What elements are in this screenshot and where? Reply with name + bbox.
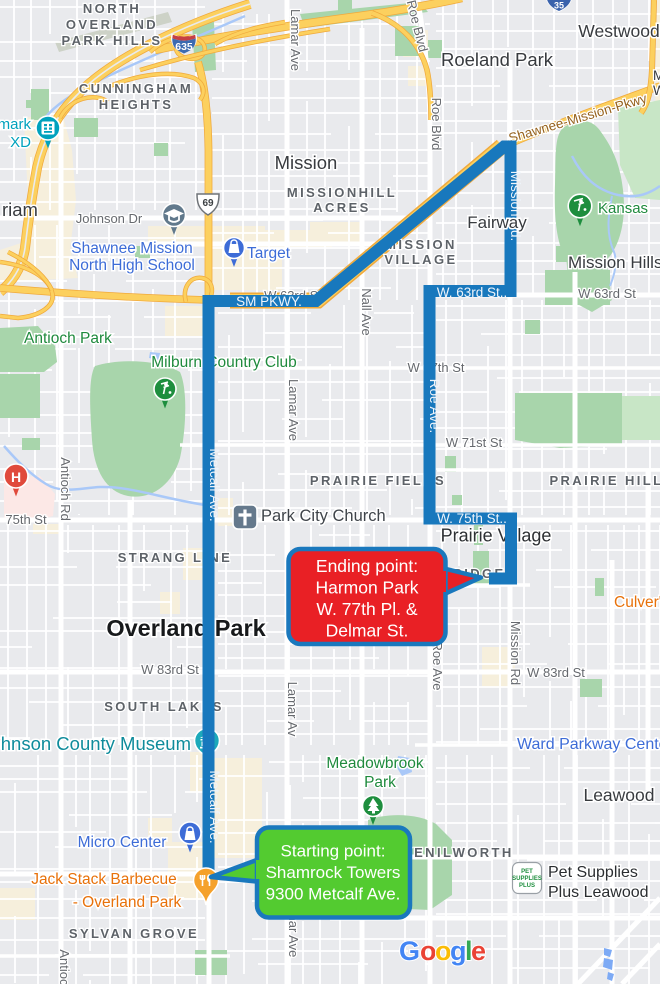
svg-text:Harmon Park: Harmon Park (315, 578, 418, 598)
svg-text:STRANG LINE: STRANG LINE (118, 550, 233, 565)
svg-text:Ending point:: Ending point: (316, 556, 418, 576)
svg-text:Shamrock Towers: Shamrock Towers (266, 863, 401, 882)
svg-text:NORTH: NORTH (83, 1, 141, 16)
svg-text:G: G (399, 936, 420, 966)
svg-text:635: 635 (175, 41, 193, 53)
svg-text:Fairway: Fairway (467, 213, 527, 232)
svg-text:Meadowbrook: Meadowbrook (326, 755, 424, 772)
svg-text:Overland Park: Overland Park (106, 615, 266, 641)
svg-text:9300 Metcalf Ave.: 9300 Metcalf Ave. (266, 885, 401, 904)
svg-text:Micro Center: Micro Center (78, 834, 167, 851)
svg-text:69: 69 (202, 198, 214, 209)
svg-text:75th St: 75th St (5, 512, 47, 527)
svg-text:PARK HILLS: PARK HILLS (61, 33, 162, 48)
svg-text:SUPPLIES: SUPPLIES (512, 876, 542, 882)
svg-text:MISSIONHILL: MISSIONHILL (287, 185, 397, 200)
svg-text:Lamar Ave: Lamar Ave (288, 9, 303, 71)
svg-text:PRAIRIE HILLS: PRAIRIE HILLS (549, 473, 660, 488)
svg-text:Plus Leawood: Plus Leawood (548, 884, 649, 901)
svg-text:Park: Park (364, 774, 396, 791)
svg-text:ACRES: ACRES (313, 200, 371, 215)
svg-text:SYLVAN GROVE: SYLVAN GROVE (69, 926, 199, 941)
svg-text:Mission Hills: Mission Hills (568, 253, 660, 272)
svg-text:W. 77th Pl. &: W. 77th Pl. & (316, 599, 417, 619)
svg-text:Shawnee Mission: Shawnee Mission (71, 240, 192, 257)
svg-text:H: H (11, 469, 21, 485)
svg-text:Culver's: Culver's (614, 594, 660, 611)
svg-text:North High School: North High School (69, 257, 195, 274)
svg-text:W 67th St: W 67th St (407, 360, 464, 375)
svg-text:Mission Rd: Mission Rd (508, 621, 523, 685)
svg-text:Roe Blvd: Roe Blvd (429, 98, 444, 151)
svg-text:SM PKWY.: SM PKWY. (236, 294, 302, 309)
svg-text:XD: XD (10, 134, 31, 151)
svg-text:W. 75th St..: W. 75th St.. (437, 511, 507, 526)
svg-text:PLUS: PLUS (519, 883, 535, 889)
svg-text:Roeland Park: Roeland Park (441, 49, 554, 70)
svg-text:HEIGHTS: HEIGHTS (99, 97, 174, 112)
svg-text:riam: riam (2, 199, 38, 220)
svg-text:VILLAGE: VILLAGE (384, 252, 457, 267)
svg-text:Delmar St.: Delmar St. (326, 621, 409, 641)
svg-text:Jack Stack Barbecue: Jack Stack Barbecue (31, 871, 177, 888)
svg-text:Johnson Dr: Johnson Dr (76, 211, 143, 226)
svg-text:Leawood: Leawood (583, 785, 654, 805)
svg-text:Mission: Mission (275, 152, 338, 173)
svg-text:W 71st St: W 71st St (446, 435, 503, 450)
svg-text:W. 63rd St..: W. 63rd St.. (437, 285, 508, 300)
svg-text:Lamar Av: Lamar Av (285, 682, 300, 737)
svg-text:Roe Ave: Roe Ave (430, 642, 445, 691)
svg-text:Ward Parkway Cente: Ward Parkway Cente (517, 736, 660, 753)
svg-text:W 63rd St: W 63rd St (578, 286, 636, 301)
svg-text:Antioch Park: Antioch Park (24, 330, 112, 347)
svg-text:Mission: Mission (653, 68, 660, 83)
svg-text:Roe Ave.: Roe Ave. (427, 379, 442, 434)
svg-text:CUNNINGHAM: CUNNINGHAM (79, 81, 193, 96)
svg-text:Metcalf Ave.: Metcalf Ave. (207, 448, 222, 521)
svg-text:Cinemark: Cinemark (0, 116, 31, 133)
svg-text:W 83rd St: W 83rd St (141, 662, 199, 677)
svg-text:Starting point:: Starting point: (281, 842, 386, 861)
svg-text:Antioch: Antioch (57, 949, 72, 984)
svg-text:Target: Target (247, 245, 291, 262)
svg-text:Westwood: Westwood (578, 21, 659, 41)
svg-text:Park City Church: Park City Church (261, 507, 386, 525)
svg-text:Lamar Ave: Lamar Ave (286, 379, 301, 441)
svg-text:Prairie Village: Prairie Village (441, 526, 552, 546)
svg-text:35: 35 (554, 1, 564, 11)
svg-text:PET: PET (521, 869, 533, 875)
svg-text:Milburn Country Club: Milburn Country Club (151, 354, 297, 371)
svg-text:Nall Ave: Nall Ave (359, 288, 374, 335)
svg-text:Johnson County Museum: Johnson County Museum (0, 733, 191, 754)
svg-text:Pet Supplies: Pet Supplies (548, 864, 638, 881)
svg-text:- Overland Park: - Overland Park (73, 894, 182, 911)
svg-text:Antioch Rd: Antioch Rd (58, 457, 73, 521)
svg-text:Woods: Woods (653, 83, 660, 98)
svg-text:KENILWORTH: KENILWORTH (402, 845, 513, 860)
svg-text:W 83rd St: W 83rd St (527, 665, 585, 680)
svg-text:Kansas: Kansas (598, 200, 648, 217)
svg-text:e: e (471, 936, 486, 966)
svg-text:OVERLAND: OVERLAND (66, 17, 158, 32)
svg-text:Metcalf Ave.: Metcalf Ave. (207, 770, 222, 843)
